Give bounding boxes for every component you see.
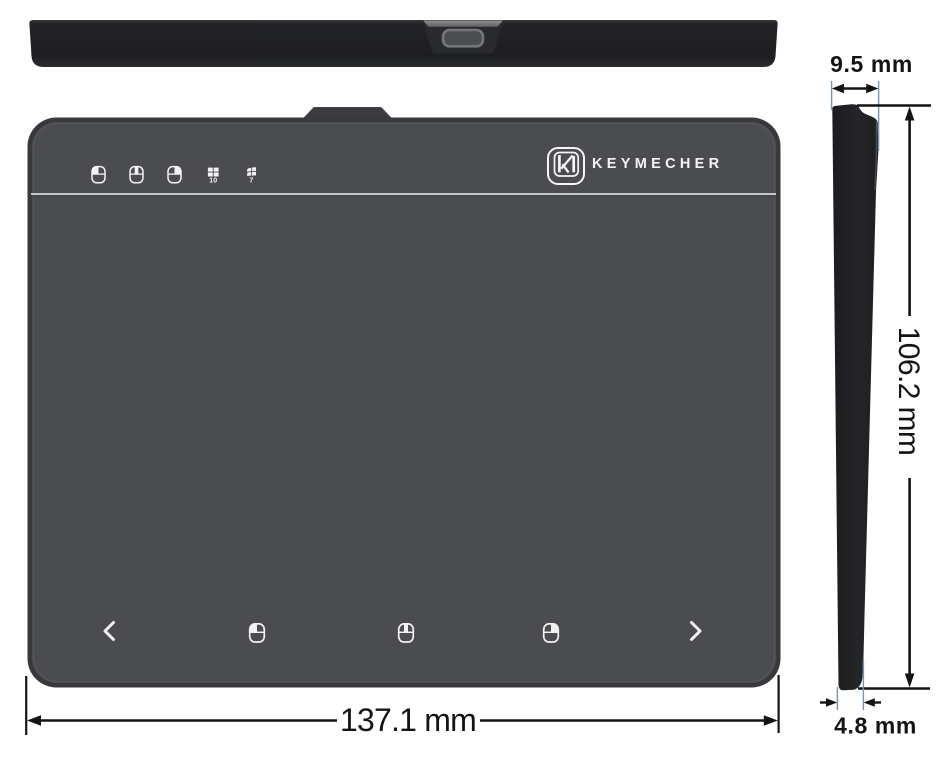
svg-text:106.2 mm: 106.2 mm [892, 327, 925, 456]
svg-text:4.8 mm: 4.8 mm [834, 713, 917, 739]
svg-text:KEYMECHER: KEYMECHER [592, 156, 723, 172]
svg-text:137.1 mm: 137.1 mm [340, 702, 476, 738]
svg-text:10: 10 [209, 178, 217, 185]
svg-text:9.5 mm: 9.5 mm [830, 51, 913, 77]
svg-text:7: 7 [249, 178, 253, 185]
